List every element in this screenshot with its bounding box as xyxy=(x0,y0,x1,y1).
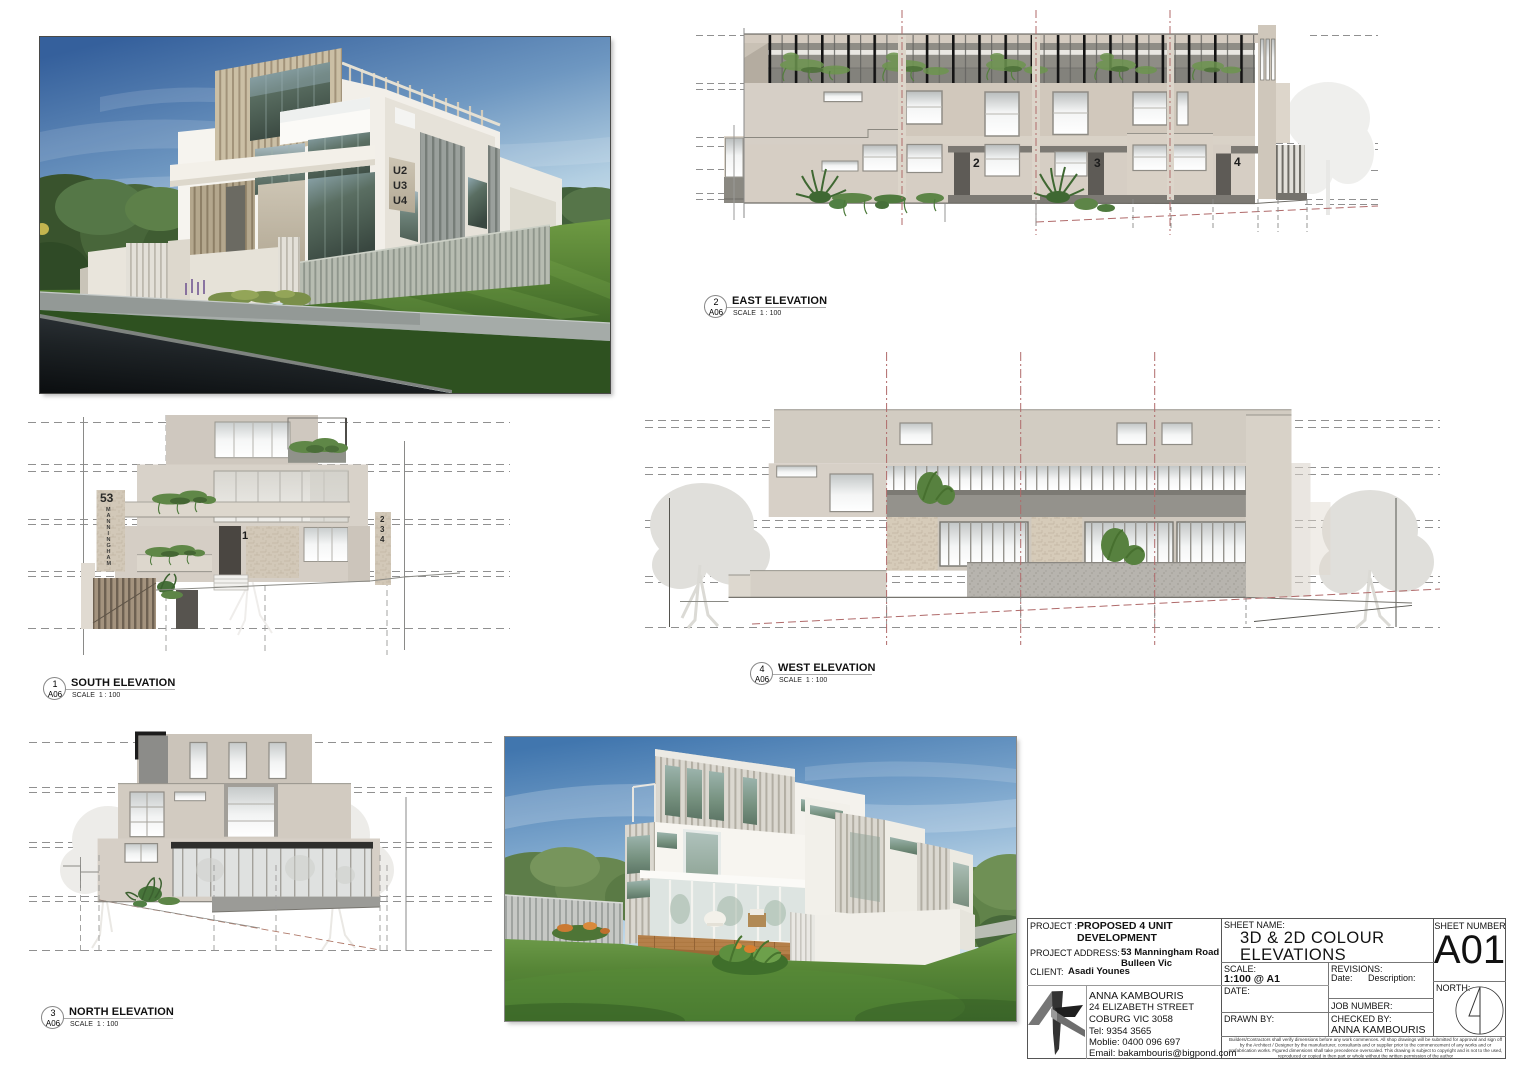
svg-text:4: 4 xyxy=(1234,155,1241,169)
svg-text:53: 53 xyxy=(100,491,114,505)
svg-text:3: 3 xyxy=(380,525,385,534)
svg-text:U2: U2 xyxy=(393,165,407,177)
svg-text:U3: U3 xyxy=(393,180,407,192)
svg-text:1: 1 xyxy=(242,530,248,542)
svg-text:U4: U4 xyxy=(393,195,408,207)
svg-text:2: 2 xyxy=(380,515,385,524)
svg-text:4: 4 xyxy=(380,535,385,544)
svg-text:3: 3 xyxy=(1094,156,1101,170)
svg-text:M: M xyxy=(107,561,112,567)
svg-text:2: 2 xyxy=(973,156,980,170)
